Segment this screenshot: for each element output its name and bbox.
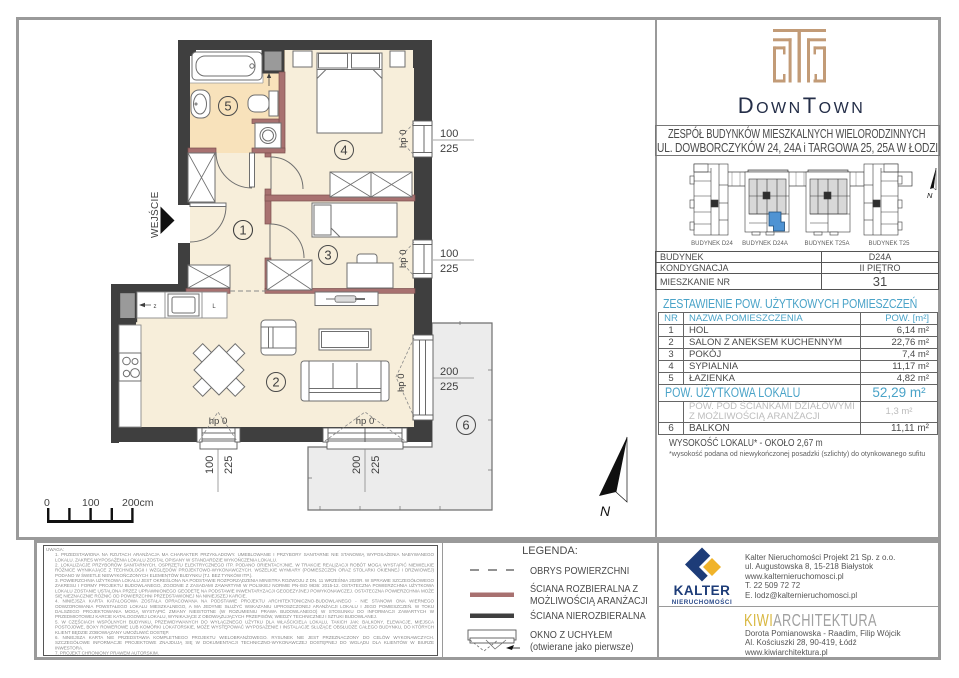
svg-text:z: z (154, 304, 157, 310)
svg-text:5: 5 (224, 99, 231, 114)
svg-text:WEJŚCIE: WEJŚCIE (148, 191, 161, 238)
svg-text:100: 100 (82, 497, 100, 509)
svg-text:2: 2 (272, 375, 279, 390)
svg-text:hp 0: hp 0 (209, 416, 228, 427)
svg-text:BUDYNEK D24: BUDYNEK D24 (691, 241, 733, 247)
svg-text:BUDYNEK T25A: BUDYNEK T25A (805, 241, 850, 247)
svg-text:BUDYNEK D24A: BUDYNEK D24A (742, 241, 788, 247)
svg-text:225: 225 (440, 381, 458, 393)
svg-text:6: 6 (462, 418, 469, 433)
svg-text:N: N (927, 191, 933, 200)
svg-text:1: 1 (239, 223, 246, 238)
svg-text:200: 200 (351, 456, 363, 474)
svg-text:KALTER: KALTER (674, 583, 731, 598)
svg-text:hp 0: hp 0 (356, 416, 375, 427)
svg-text:100: 100 (204, 456, 216, 474)
svg-text:225: 225 (440, 263, 458, 275)
svg-text:0: 0 (44, 497, 50, 509)
svg-text:hp 0: hp 0 (398, 250, 409, 269)
svg-text:225: 225 (370, 456, 382, 474)
svg-text:NIERUCHOMOŚCI: NIERUCHOMOŚCI (672, 599, 732, 606)
svg-text:100: 100 (440, 128, 458, 140)
svg-text:200: 200 (440, 366, 458, 378)
svg-text:3: 3 (324, 248, 331, 263)
svg-text:hp 0: hp 0 (398, 130, 409, 149)
svg-text:200cm: 200cm (122, 497, 154, 509)
svg-text:hp 0: hp 0 (396, 374, 407, 393)
svg-text:225: 225 (440, 143, 458, 155)
svg-text:100: 100 (440, 248, 458, 260)
svg-text:BUDYNEK T25: BUDYNEK T25 (869, 241, 911, 247)
svg-text:N: N (600, 503, 611, 519)
svg-text:225: 225 (223, 456, 235, 474)
svg-text:4: 4 (340, 143, 347, 158)
